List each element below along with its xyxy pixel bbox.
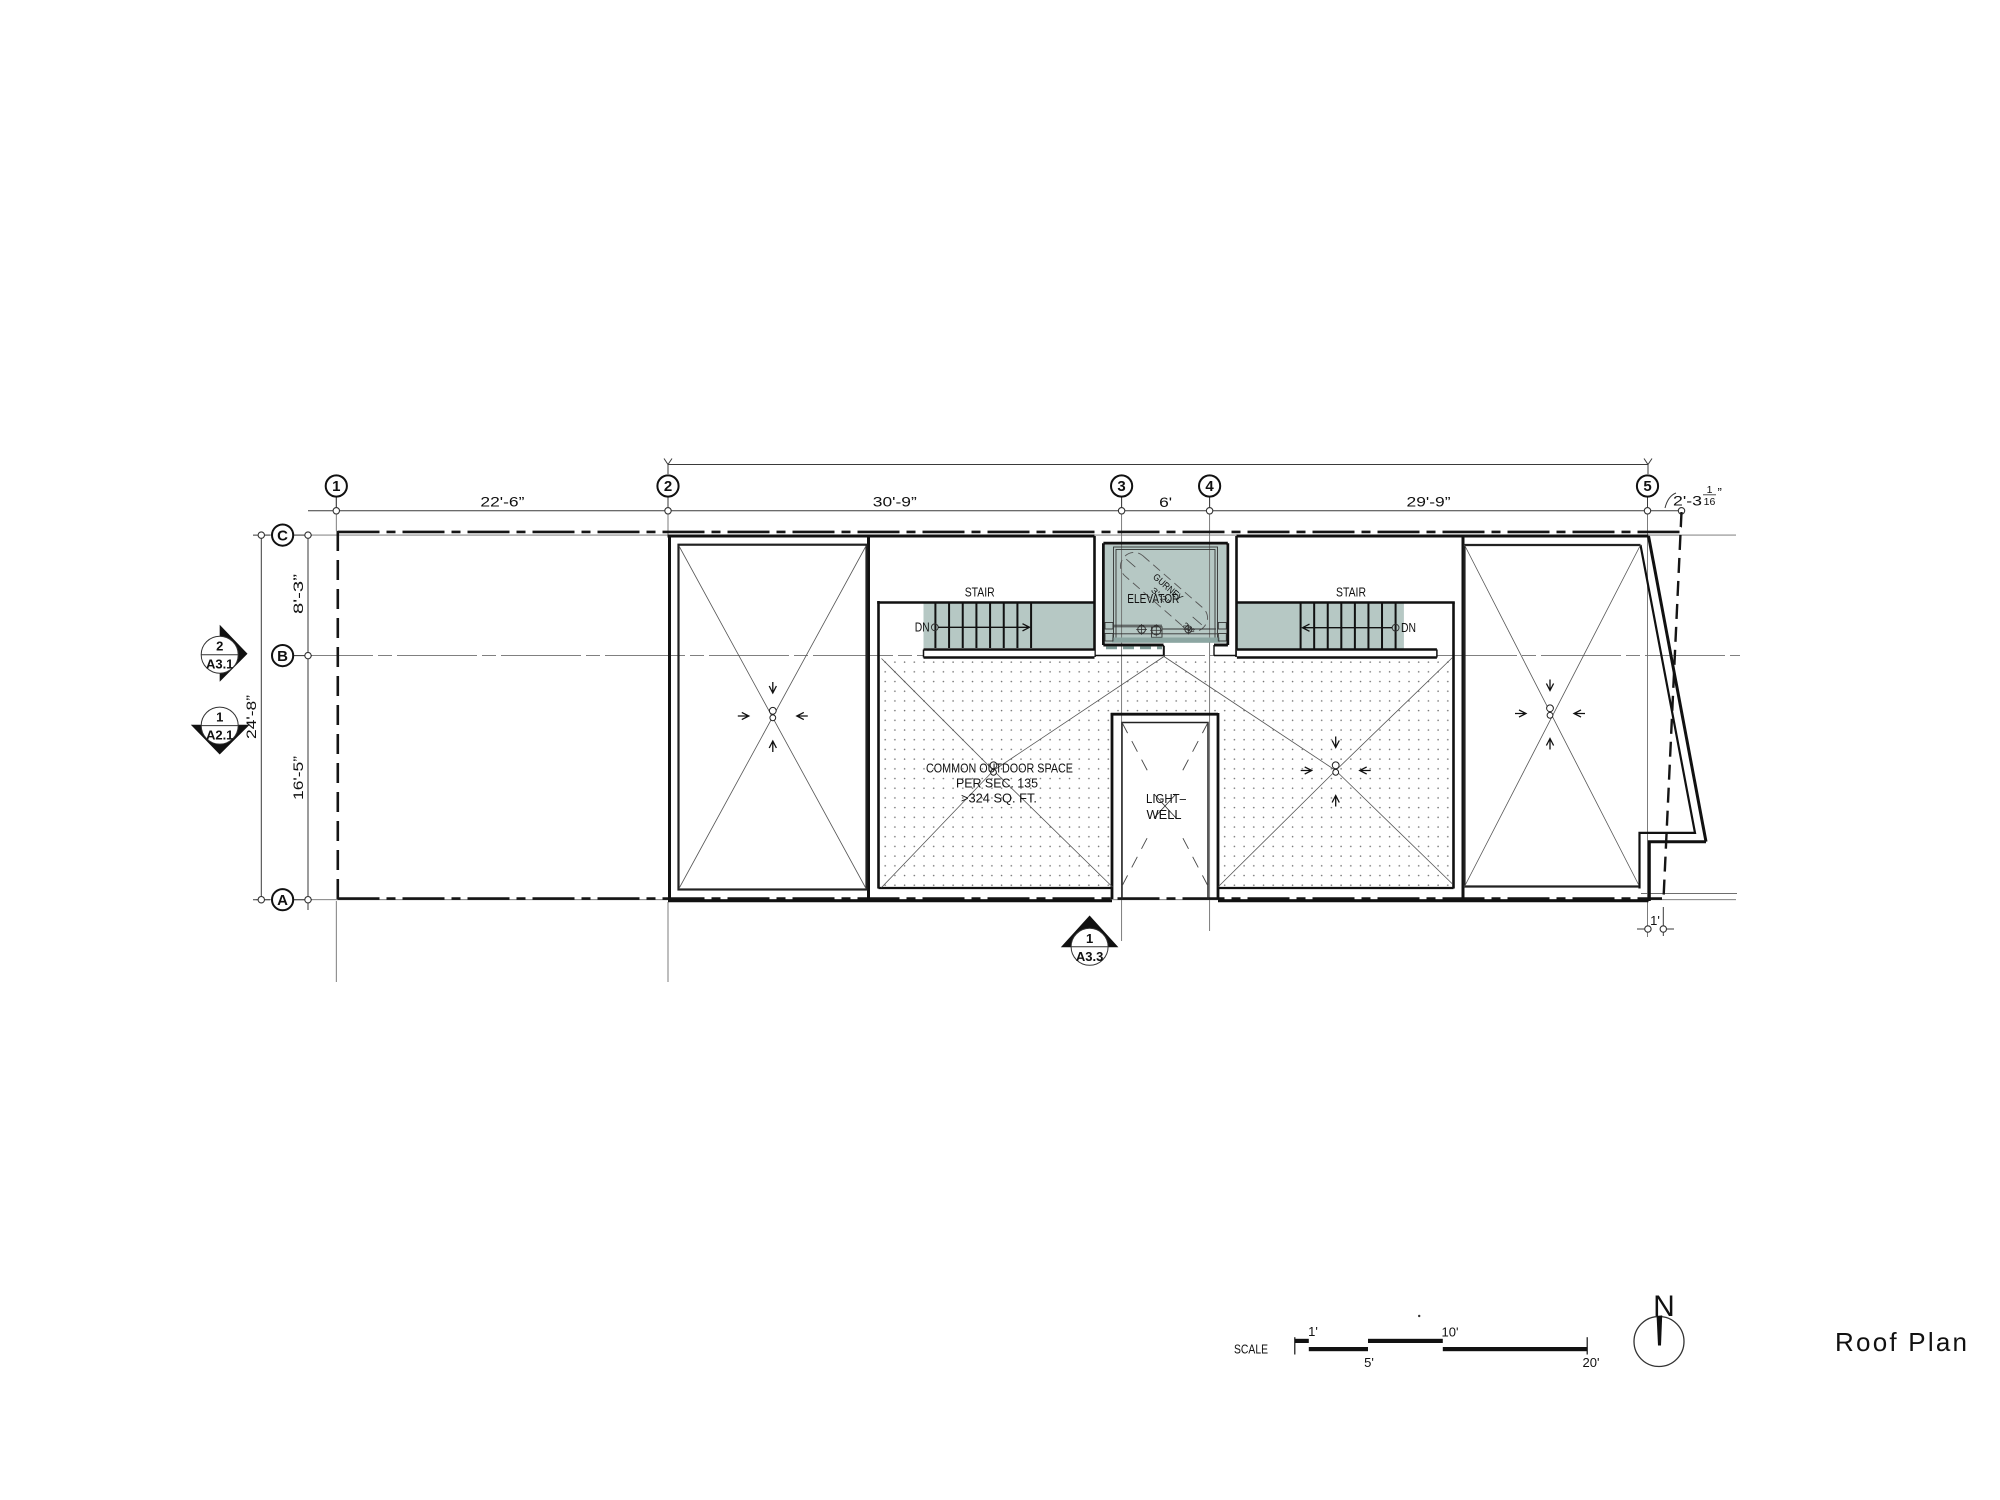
svg-text:”: ” [1718, 485, 1722, 500]
svg-text:1: 1 [216, 710, 223, 725]
svg-text:6': 6' [1159, 494, 1172, 510]
svg-text:1: 1 [1086, 931, 1093, 946]
svg-text:DN: DN [1401, 621, 1416, 635]
svg-text:Roof Plan: Roof Plan [1835, 1327, 1969, 1357]
svg-text:16: 16 [1704, 496, 1716, 508]
svg-text:A3.3: A3.3 [1076, 949, 1103, 964]
svg-text:COMMON OUTDOOR SPACE: COMMON OUTDOOR SPACE [926, 761, 1073, 776]
svg-text:3: 3 [1117, 478, 1125, 495]
svg-text:20': 20' [1583, 1355, 1600, 1370]
svg-text:22'-6”: 22'-6” [480, 494, 524, 510]
svg-text:A2.1: A2.1 [206, 728, 233, 743]
svg-text:2'-3: 2'-3 [1673, 493, 1702, 509]
svg-text:A3.1: A3.1 [206, 657, 233, 672]
svg-text:STAIR: STAIR [1336, 586, 1366, 600]
svg-text:5: 5 [1643, 478, 1651, 495]
svg-text:10': 10' [1442, 1325, 1459, 1340]
svg-text:4: 4 [1205, 478, 1214, 495]
svg-text:5': 5' [1364, 1355, 1374, 1370]
svg-text:16'-5”: 16'-5” [290, 756, 306, 800]
svg-text:N: N [1653, 1290, 1675, 1323]
svg-text:1': 1' [1308, 1324, 1318, 1339]
svg-text:>324 SQ. FT.: >324 SQ. FT. [961, 791, 1037, 806]
svg-text:2: 2 [216, 639, 223, 654]
svg-text:STAIR: STAIR [965, 586, 995, 600]
svg-text:1: 1 [332, 478, 340, 495]
svg-text:24'-8”: 24'-8” [243, 695, 259, 739]
svg-text:C: C [277, 527, 288, 544]
svg-text:LIGHT–: LIGHT– [1146, 791, 1187, 806]
svg-text:DN: DN [915, 621, 930, 635]
svg-text:2: 2 [664, 478, 672, 495]
svg-text:1': 1' [1650, 913, 1660, 928]
svg-text:8'-3”: 8'-3” [290, 574, 306, 614]
svg-text:A: A [277, 892, 288, 909]
svg-text:SCALE: SCALE [1234, 1343, 1268, 1357]
svg-text:WELL: WELL [1147, 807, 1182, 822]
svg-text:30'-9”: 30'-9” [873, 494, 917, 510]
svg-text:B: B [277, 648, 288, 665]
svg-text:PER SEC. 135: PER SEC. 135 [956, 776, 1038, 791]
svg-text:29'-9”: 29'-9” [1407, 494, 1451, 510]
svg-text:ELEVATOR: ELEVATOR [1127, 592, 1179, 606]
